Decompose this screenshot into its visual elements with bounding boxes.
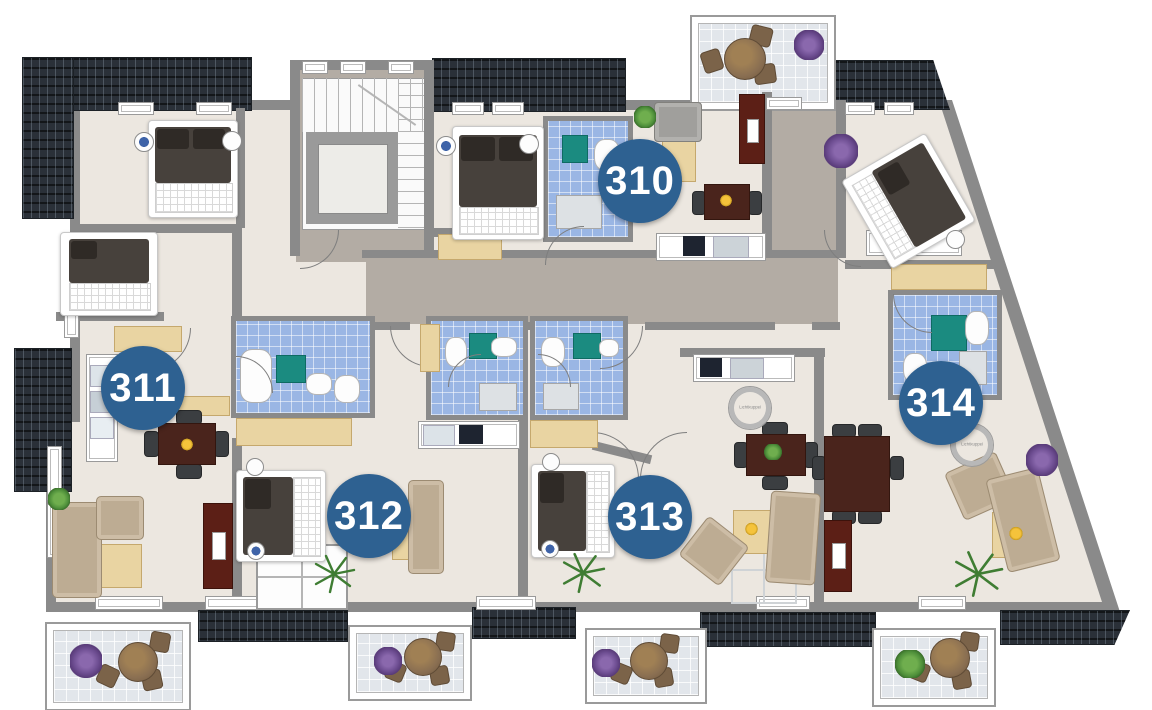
- wall-stair-right: [424, 60, 434, 256]
- dining-chair: [762, 476, 788, 490]
- plant-purple: [592, 649, 620, 677]
- dining-chair: [214, 431, 229, 457]
- sofa-311: [52, 502, 102, 598]
- sideboard-311: [203, 503, 233, 589]
- wall-decor: [247, 542, 265, 560]
- toilet: [334, 375, 360, 403]
- armchair-311: [96, 496, 144, 540]
- sink: [306, 373, 332, 395]
- plant-310: [634, 106, 656, 128]
- cabinet-hall: [420, 324, 440, 372]
- fridge: [423, 425, 455, 446]
- plant-palm: [560, 552, 606, 594]
- plant-palm: [312, 554, 356, 594]
- apartment-badge-310[interactable]: 310: [598, 139, 682, 223]
- window: [452, 102, 484, 115]
- apartment-badge-314[interactable]: 314: [899, 361, 983, 445]
- floor-plan: Lichtkuppel Lichtkuppel 310 311 312 313 …: [0, 0, 1152, 710]
- kitchen-sink: [90, 417, 114, 439]
- dining-chair: [858, 510, 882, 524]
- bath-mat: [276, 355, 306, 383]
- kitchen-sink: [713, 236, 749, 258]
- table-decor: [744, 522, 759, 536]
- armchair-310: [654, 102, 702, 142]
- balcony-4: [872, 628, 996, 707]
- balcony-table: [118, 642, 158, 682]
- stove: [459, 425, 483, 444]
- window: [196, 102, 232, 115]
- balcony-2: [348, 625, 472, 701]
- apartment-number: 313: [615, 495, 685, 540]
- window: [492, 102, 524, 115]
- window: [388, 61, 414, 74]
- central-corridor: [366, 254, 838, 324]
- apartment-number: 312: [334, 494, 404, 539]
- balcony-table: [930, 638, 970, 678]
- sink-faucet: [542, 453, 560, 471]
- roof-left-upper: [22, 57, 74, 219]
- wall-decor: [519, 134, 539, 154]
- wall-decor: [436, 136, 456, 156]
- dresser-313: [530, 420, 598, 448]
- dining-chair: [748, 191, 762, 215]
- skylight-label: Lichtkuppel: [739, 406, 761, 410]
- stove: [700, 358, 722, 377]
- window: [95, 596, 163, 610]
- apartment-badge-311[interactable]: 311: [101, 346, 185, 430]
- sofa-313: [765, 490, 821, 585]
- wall-decor: [222, 131, 242, 151]
- kitchen-counter-310: [656, 233, 766, 261]
- wall-decor: [246, 458, 264, 476]
- sideboard-310: [739, 94, 765, 164]
- bath-mat: [931, 315, 967, 351]
- table-decor: [1008, 526, 1024, 541]
- roof-left-lower: [14, 348, 72, 492]
- kitchen-sink: [730, 358, 764, 379]
- sofa-312: [408, 480, 444, 574]
- wardrobe-314: [891, 264, 987, 290]
- roof-bottom-3: [700, 612, 876, 647]
- balcony-table: [724, 38, 766, 80]
- window: [918, 596, 966, 610]
- toilet: [491, 337, 517, 357]
- shower-tray: [479, 383, 517, 411]
- apartment-number: 310: [605, 159, 675, 204]
- dining-chair: [144, 431, 159, 457]
- window: [766, 97, 802, 110]
- skylight-label: Lichtkuppel: [961, 443, 983, 447]
- apartment-badge-312[interactable]: 312: [327, 474, 411, 558]
- stove: [683, 236, 705, 256]
- balcony-1: [45, 622, 191, 710]
- plant-purple: [794, 30, 824, 60]
- plant-palm: [950, 550, 1006, 598]
- bath-mat: [573, 333, 601, 359]
- roof-bottom-right: [1000, 610, 1130, 645]
- bed-311-second: [60, 232, 158, 316]
- window: [340, 61, 366, 74]
- dining-table-314: [824, 436, 890, 512]
- plant-purple: [824, 134, 858, 168]
- wall-decor: [134, 132, 154, 152]
- sink: [965, 311, 989, 345]
- balcony-table: [404, 638, 442, 676]
- window: [845, 102, 875, 115]
- stair-treads-right: [398, 78, 424, 228]
- shower-tray: [556, 195, 602, 229]
- table-decor: [180, 438, 194, 451]
- window: [884, 102, 914, 115]
- dining-chair: [176, 464, 202, 479]
- kitchen-sink-round: [946, 230, 965, 249]
- apartment-number: 311: [109, 366, 177, 411]
- plant-311: [48, 488, 70, 510]
- table-plant: [764, 444, 782, 460]
- dining-chair: [890, 456, 904, 480]
- window: [118, 102, 154, 115]
- wall-stair-left: [290, 60, 300, 256]
- roof-bottom-2: [472, 607, 576, 639]
- plant-purple: [70, 644, 102, 678]
- wardrobe-312: [236, 418, 352, 446]
- apartment-number: 314: [906, 381, 976, 426]
- balcony-table: [630, 642, 668, 680]
- apartment-badge-313[interactable]: 313: [608, 475, 692, 559]
- kitchen-counter-313: [693, 354, 795, 382]
- table-decor: [719, 194, 733, 207]
- plant-green: [895, 650, 925, 678]
- elevator-car: [318, 144, 388, 214]
- window: [302, 61, 328, 74]
- roof-bottom-1: [198, 610, 348, 642]
- bath-mat: [562, 135, 588, 163]
- plant-purple: [374, 647, 402, 675]
- shower-tray: [543, 383, 579, 410]
- plant-purple: [1026, 444, 1058, 476]
- wall-corridor-bottom-d: [812, 322, 840, 330]
- balcony-3: [585, 628, 707, 704]
- kitchen-counter-312: [418, 421, 520, 449]
- wall-decor: [541, 540, 559, 558]
- window: [476, 596, 536, 610]
- wall-corridor-bottom-c: [645, 322, 775, 330]
- skylight-circle-1: Lichtkuppel: [728, 386, 772, 430]
- sideboard-314: [824, 520, 852, 592]
